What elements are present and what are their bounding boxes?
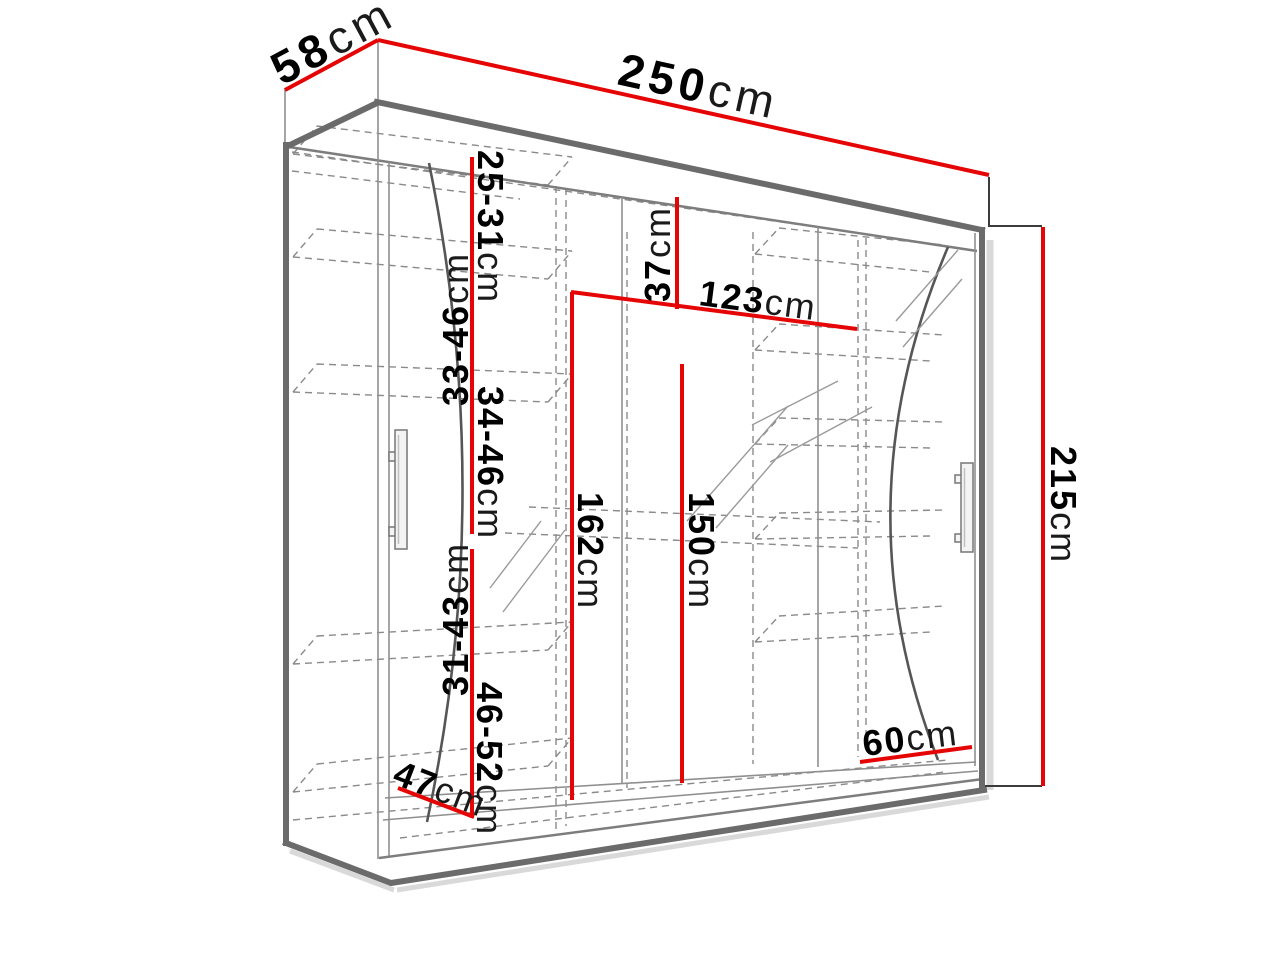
wardrobe-dimension-diagram: 58cm 250cm 25-31cm 33-46cm 34-46cm 31-43… (0, 0, 1280, 960)
extension-lines (985, 177, 1042, 786)
label-shelf-gap-1: 25-31cm (470, 150, 511, 304)
front-face (286, 145, 985, 883)
label-hanging-height-right: 150cm (681, 492, 722, 610)
label-top-section-height: 37cm (637, 206, 678, 302)
label-shelf-gap-3: 34-46cm (470, 386, 511, 540)
label-hanging-height-left: 162cm (570, 492, 611, 610)
label-height: 215cm (1043, 446, 1084, 564)
label-shelf-gap-2: 33-46cm (435, 252, 476, 406)
label-shelf-gap-4: 31-43cm (435, 542, 476, 696)
